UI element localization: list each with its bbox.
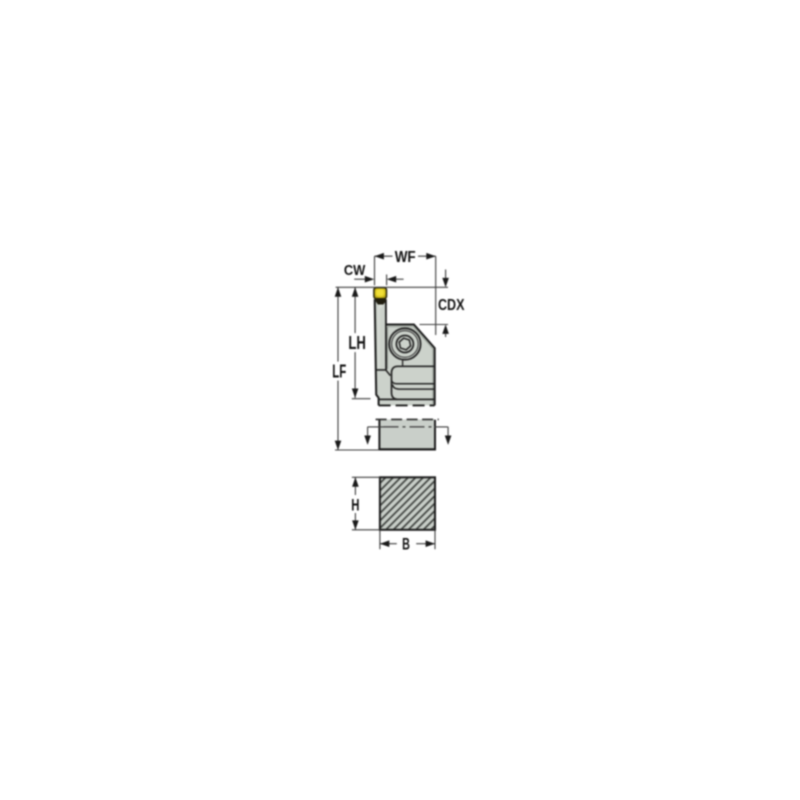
- svg-text:H: H: [351, 495, 359, 514]
- svg-text:LH: LH: [348, 333, 366, 353]
- svg-text:CDX: CDX: [438, 297, 465, 314]
- svg-text:B: B: [402, 536, 410, 554]
- svg-text:WF: WF: [395, 249, 416, 266]
- svg-text:LF: LF: [332, 361, 346, 381]
- svg-text:CW: CW: [344, 262, 366, 279]
